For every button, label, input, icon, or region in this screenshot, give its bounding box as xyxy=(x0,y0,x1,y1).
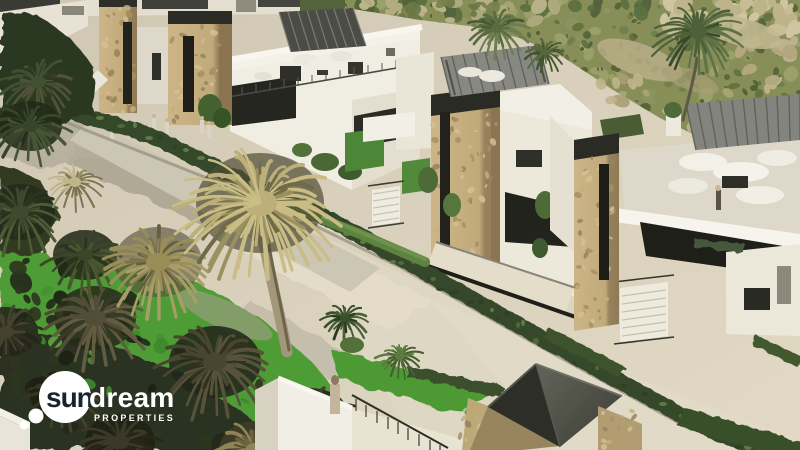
svg-text:PROPERTIES: PROPERTIES xyxy=(94,413,175,423)
svg-text:dream: dream xyxy=(89,382,175,413)
svg-text:sun: sun xyxy=(46,382,93,413)
